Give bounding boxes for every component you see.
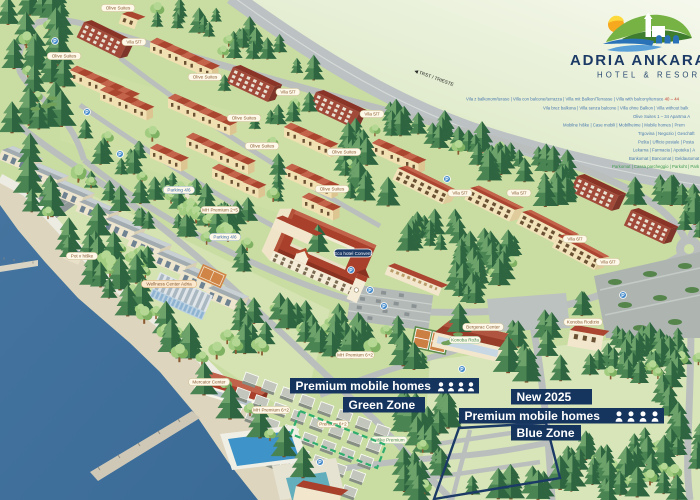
svg-text:Olive Suites: Olive Suites xyxy=(332,150,357,155)
svg-text:Olive Suites: Olive Suites xyxy=(232,116,257,121)
svg-text:Bergerac Center: Bergerac Center xyxy=(466,325,500,330)
svg-text:Vila 6/7: Vila 6/7 xyxy=(567,237,583,242)
svg-text:Olive Suites: Olive Suites xyxy=(52,54,77,59)
svg-text:Parking 4/6: Parking 4/6 xyxy=(167,188,191,193)
svg-text:P: P xyxy=(53,39,57,45)
svg-text:Mercator Center: Mercator Center xyxy=(192,380,226,385)
svg-text:MH Premium 6+2: MH Premium 6+2 xyxy=(253,408,289,413)
svg-text:P: P xyxy=(382,304,386,310)
svg-text:Pošta | Ufficio postale |: Pošta | Ufficio postale | Posta xyxy=(638,140,695,145)
svg-text:Trgovina | Negozio | Gesch: Trgovina | Negozio | Geschäft xyxy=(638,131,695,136)
svg-text:Olive Suites: Olive Suites xyxy=(320,187,345,192)
svg-text:Vila 5/7: Vila 5/7 xyxy=(511,191,527,196)
svg-text:MH Premium 6+2: MH Premium 6+2 xyxy=(337,353,373,358)
svg-text:Konoba Roža: Konoba Roža xyxy=(451,338,479,343)
svg-text:Vila 5/7: Vila 5/7 xyxy=(126,40,142,45)
svg-text:Vila 5/7: Vila 5/7 xyxy=(280,90,296,95)
svg-text:ADRIA ANKARAN: ADRIA ANKARAN xyxy=(570,52,700,69)
svg-text:MH Premium 2+5: MH Premium 2+5 xyxy=(202,208,238,213)
svg-text:Eco hotel Convent: Eco hotel Convent xyxy=(334,251,372,256)
svg-text:Vila z balkonom/teraso | Vil: Vila z balkonom/teraso | Villa con balco… xyxy=(466,97,680,102)
svg-text:P: P xyxy=(445,177,449,183)
svg-text:Olive Suites: Olive Suites xyxy=(250,144,275,149)
svg-text:Olive Suites 1 – 34 Apartm: Olive Suites 1 – 34 Apartma A xyxy=(633,114,690,119)
svg-text:Wellness Center Adria: Wellness Center Adria xyxy=(146,282,192,287)
svg-text:Premium mobile homes: Premium mobile homes xyxy=(296,379,432,393)
svg-text:Vila 5/7: Vila 5/7 xyxy=(364,112,380,117)
svg-text:Vila brez balkona | Villa se: Vila brez balkona | Villa senza balcone … xyxy=(543,106,689,111)
svg-text:Blue Zone: Blue Zone xyxy=(517,426,575,440)
svg-text:P: P xyxy=(460,367,464,373)
svg-text:Premium mobile homes: Premium mobile homes xyxy=(465,409,601,423)
svg-text:HOTEL & RESORT: HOTEL & RESORT xyxy=(597,71,700,80)
svg-text:P: P xyxy=(621,293,625,299)
svg-text:Pot v hiške: Pot v hiške xyxy=(71,254,94,259)
svg-text:P: P xyxy=(318,460,322,466)
svg-text:Vila 6/7: Vila 6/7 xyxy=(600,260,616,265)
svg-text:P: P xyxy=(85,110,89,116)
svg-text:Vila 5/7: Vila 5/7 xyxy=(452,191,468,196)
svg-text:Parkomat | Cassa parcheggio: Parkomat | Cassa parcheggio | Parkoht | … xyxy=(612,164,700,169)
svg-text:Mobilne hiške | Case mobili: Mobilne hiške | Case mobili | Mobilheime… xyxy=(563,123,685,128)
svg-text:P: P xyxy=(368,288,372,294)
svg-text:Olive Suites: Olive Suites xyxy=(106,6,131,11)
svg-text:Premium 6+2: Premium 6+2 xyxy=(319,422,347,427)
svg-text:P: P xyxy=(349,268,353,274)
svg-text:Parking 4/6: Parking 4/6 xyxy=(213,235,237,240)
svg-text:Hiške Premium: Hiške Premium xyxy=(373,438,404,443)
svg-text:New 2025: New 2025 xyxy=(517,390,572,404)
svg-text:Konoba Rodizio: Konoba Rodizio xyxy=(567,320,600,325)
svg-text:Green Zone: Green Zone xyxy=(349,398,416,412)
svg-text:Lekarna | Farmacia | Apote: Lekarna | Farmacia | Apoteka | A xyxy=(633,148,695,153)
svg-text:P: P xyxy=(118,152,122,158)
svg-text:Bankomat | Bancomat | Geld: Bankomat | Bancomat | Geldautomat xyxy=(629,156,700,161)
svg-text:Olive Suites: Olive Suites xyxy=(193,75,218,80)
